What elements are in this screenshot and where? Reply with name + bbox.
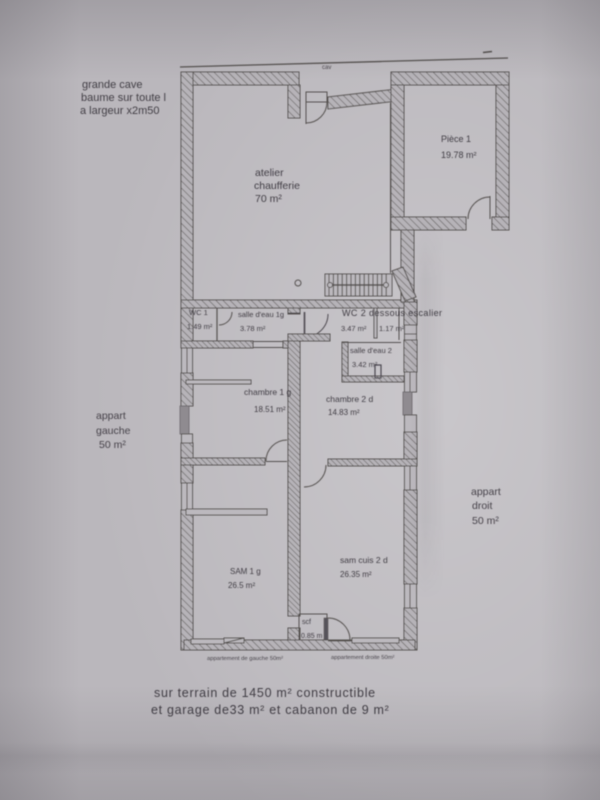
svg-text:salle d'eau 2: salle d'eau 2 xyxy=(350,346,392,355)
svg-text:chambre 2 d: chambre 2 d xyxy=(326,394,374,404)
svg-text:cav: cav xyxy=(322,65,331,71)
svg-text:chambre 1 g: chambre 1 g xyxy=(244,387,292,397)
svg-text:Pièce 1: Pièce 1 xyxy=(441,134,471,144)
svg-text:26.5 m²: 26.5 m² xyxy=(228,581,255,590)
svg-text:atelier: atelier xyxy=(255,167,284,179)
svg-text:14.83 m²: 14.83 m² xyxy=(328,408,360,417)
svg-text:baume sur toute l: baume sur toute l xyxy=(81,92,166,104)
svg-text:3.47 m²: 3.47 m² xyxy=(341,324,367,333)
svg-text:appartement de gauche 50m²: appartement de gauche 50m² xyxy=(207,656,283,662)
svg-text:19.78 m²: 19.78 m² xyxy=(441,150,477,160)
svg-text:50 m²: 50 m² xyxy=(99,439,126,451)
svg-text:sam cuis 2 d: sam cuis 2 d xyxy=(340,555,388,565)
svg-text:appart: appart xyxy=(471,486,501,498)
svg-text:chaufferie: chaufferie xyxy=(254,180,300,192)
svg-text:0.85 m: 0.85 m xyxy=(301,633,323,640)
svg-text:70 m²: 70 m² xyxy=(255,193,282,205)
svg-text:3.42 m²: 3.42 m² xyxy=(352,360,378,369)
svg-text:1.17 m²: 1.17 m² xyxy=(379,324,405,333)
svg-text:salle d'eau 1g: salle d'eau 1g xyxy=(238,310,284,319)
svg-text:a largeur x2m50: a largeur x2m50 xyxy=(80,105,160,117)
svg-text:WC 1: WC 1 xyxy=(189,308,208,317)
svg-text:grande cave: grande cave xyxy=(82,79,143,91)
svg-text:scf: scf xyxy=(302,619,311,626)
svg-text:sur terrain de 1450 m² constru: sur terrain de 1450 m² constructible xyxy=(154,686,376,700)
svg-text:appart: appart xyxy=(96,410,126,422)
svg-text:50 m²: 50 m² xyxy=(472,515,499,527)
svg-text:SAM 1 g: SAM 1 g xyxy=(230,567,261,576)
svg-text:WC 2 dessous escalier: WC 2 dessous escalier xyxy=(342,308,442,318)
svg-text:gauche: gauche xyxy=(96,425,131,437)
svg-text:droit: droit xyxy=(472,500,493,512)
svg-text:3.78 m²: 3.78 m² xyxy=(240,324,266,333)
svg-text:appartement droite 50m²: appartement droite 50m² xyxy=(331,655,395,661)
svg-text:et garage de33 m² et cabanon d: et garage de33 m² et cabanon de 9 m² xyxy=(151,703,390,717)
svg-text:1.49 m²: 1.49 m² xyxy=(187,322,213,331)
svg-text:26.35 m²: 26.35 m² xyxy=(340,570,372,579)
svg-text:18.51 m²: 18.51 m² xyxy=(254,405,286,414)
